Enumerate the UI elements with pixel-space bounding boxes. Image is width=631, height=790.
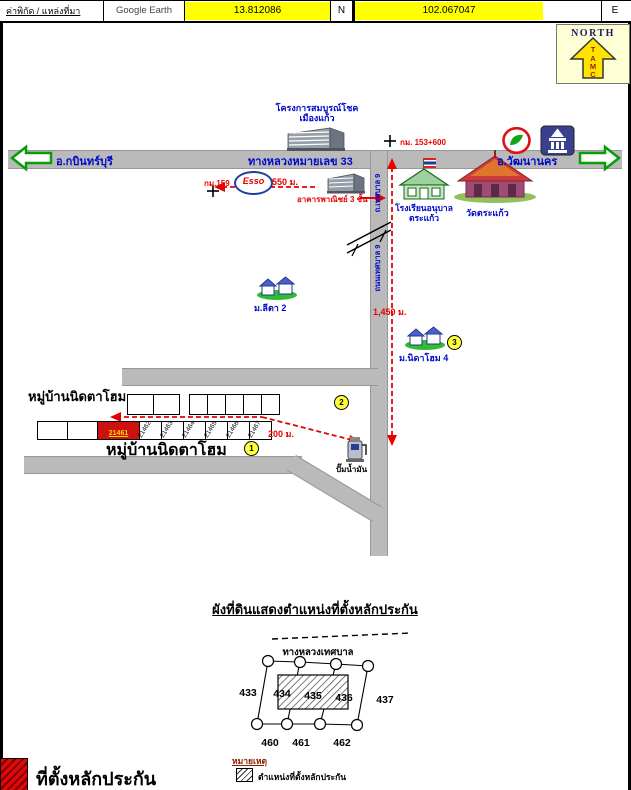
plot-box xyxy=(189,394,208,415)
plot-box xyxy=(261,394,280,415)
lat-unit: N xyxy=(331,2,352,20)
side-road-upper-label: ถ.เทศบาล 9 xyxy=(372,168,384,218)
esso-station-badge: Esso xyxy=(234,171,273,195)
highway-name-label: ทางหลวงหมายเลข 33 xyxy=(248,152,353,170)
svg-text:437: 437 xyxy=(376,694,394,706)
legend-text: ตำแหน่งที่ตั้งหลักประกัน xyxy=(258,770,346,784)
upper-plot-group-b xyxy=(190,394,280,415)
svg-text:C: C xyxy=(590,70,596,79)
distance-1450-label: 1,450 ม. xyxy=(373,305,406,319)
school-label: โรงเรียนอนุบาลตระแก้ว xyxy=(392,203,456,223)
map-document: ค่าพิกัด / แหล่งที่มา Google Earth 13.81… xyxy=(0,0,631,790)
coords-source-label: ค่าพิกัด / แหล่งที่มา xyxy=(6,2,102,20)
village-road-upper xyxy=(122,368,378,386)
km-153-label: กม. 153+600 xyxy=(400,136,446,149)
commercial-building-label: อาคารพาณิชย์ 3 ชั้น xyxy=(297,193,368,206)
village-4-houses-icon xyxy=(404,326,446,350)
svg-text:434: 434 xyxy=(273,688,291,700)
left-border xyxy=(0,0,3,790)
plot-box xyxy=(243,394,262,415)
legend-title: หมายเหตุ xyxy=(232,754,267,768)
plan-road-label: ทางหลวงเทศบาล xyxy=(282,647,353,658)
svg-text:462: 462 xyxy=(333,737,351,749)
school-icon xyxy=(398,158,450,202)
source-value: Google Earth xyxy=(104,2,184,20)
collateral-plot-number: 21461 xyxy=(109,430,128,437)
distance-200-label: 200 ม. xyxy=(268,427,294,441)
village-name-bottom: หมู่บ้านนิดตาโฮม xyxy=(106,438,227,463)
upper-plot-group-a xyxy=(128,394,180,415)
footer-hatch-swatch xyxy=(0,758,28,790)
north-compass-icon: NORTH T A M C xyxy=(556,24,630,84)
side-road-lower-label: ถนนเทศบาล 9 xyxy=(372,233,384,303)
fuel-station-label: ปั๊มน้ำมัน xyxy=(336,463,367,476)
plot-box xyxy=(225,394,244,415)
svg-text:460: 460 xyxy=(261,737,279,749)
plot-box: 21466 xyxy=(227,421,250,440)
longitude-cell: 102.067047 xyxy=(355,2,543,20)
svg-text:T: T xyxy=(591,45,596,54)
route-marker-3: 3 xyxy=(447,335,462,350)
svg-text:461: 461 xyxy=(292,737,310,749)
lng-unit: E xyxy=(602,2,628,20)
plot-box xyxy=(153,394,180,415)
village-road-lower-diagonal xyxy=(287,455,382,522)
plan-title: ผังที่ดินแสดงตำแหน่งที่ตั้งหลักประกัน xyxy=(150,599,480,620)
west-destination-label: อ.กบินทร์บุรี xyxy=(56,152,113,170)
route-marker-2: 2 xyxy=(334,395,349,410)
latitude-cell: 13.812086 xyxy=(185,2,330,20)
distance-550-label: 550 ม. xyxy=(272,175,298,189)
plot-box xyxy=(127,394,154,415)
legend-hatch-swatch xyxy=(236,768,253,782)
route-marker-1: 1 xyxy=(244,441,259,456)
east-destination-label: อ.วัฒนานคร xyxy=(497,152,557,170)
plot-box xyxy=(207,394,226,415)
west-direction-arrow-icon xyxy=(9,144,53,172)
east-direction-arrow-icon xyxy=(578,144,622,172)
km-159-label: กม.159 xyxy=(204,177,230,190)
svg-text:436: 436 xyxy=(335,692,353,704)
fuel-pump-icon xyxy=(343,435,369,463)
plot-box xyxy=(37,421,68,440)
village-2-houses-icon xyxy=(256,276,298,300)
village-name-top: หมู่บ้านนิดตาโฮม xyxy=(28,386,126,407)
header-bar: ค่าพิกัด / แหล่งที่มา Google Earth 13.81… xyxy=(0,0,631,23)
village-2-label: ม.ลีตา 2 xyxy=(254,301,286,315)
village-4-label: ม.นิดาโฮม 4 xyxy=(399,351,448,365)
land-plan-diagram: ทางหลวงเทศบาล 433 434 435 436 437 460 46… xyxy=(230,628,410,758)
svg-text:433: 433 xyxy=(239,687,257,699)
project-building-icon xyxy=(286,124,346,152)
esso-label: Esso xyxy=(236,173,271,189)
commercial-building-icon xyxy=(326,170,366,194)
temple-label: วัดตระแก้ว xyxy=(466,206,509,220)
plot-box xyxy=(67,421,98,440)
project-label: โครงการสมบูรณ์โชคเมืองแก้ว xyxy=(268,103,366,123)
svg-text:435: 435 xyxy=(304,690,322,702)
footer-label: ที่ตั้งหลักประกัน xyxy=(36,764,156,790)
